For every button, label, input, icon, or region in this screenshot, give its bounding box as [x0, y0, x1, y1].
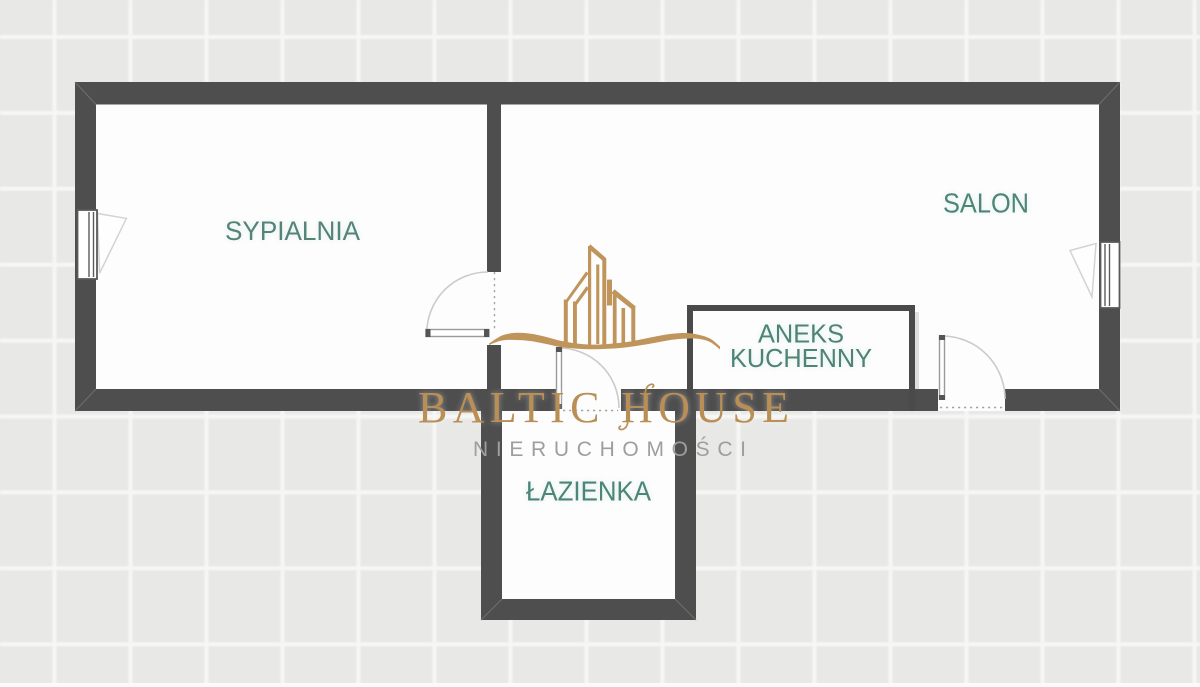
svg-text:SYPIALNIA: SYPIALNIA — [225, 216, 360, 246]
svg-text:ŁAZIENKA: ŁAZIENKA — [526, 476, 651, 507]
svg-text:SALON: SALON — [943, 188, 1029, 219]
svg-text:NIERUCHOMOŚCI: NIERUCHOMOŚCI — [473, 437, 746, 461]
svg-text:KUCHENNY: KUCHENNY — [730, 343, 872, 373]
